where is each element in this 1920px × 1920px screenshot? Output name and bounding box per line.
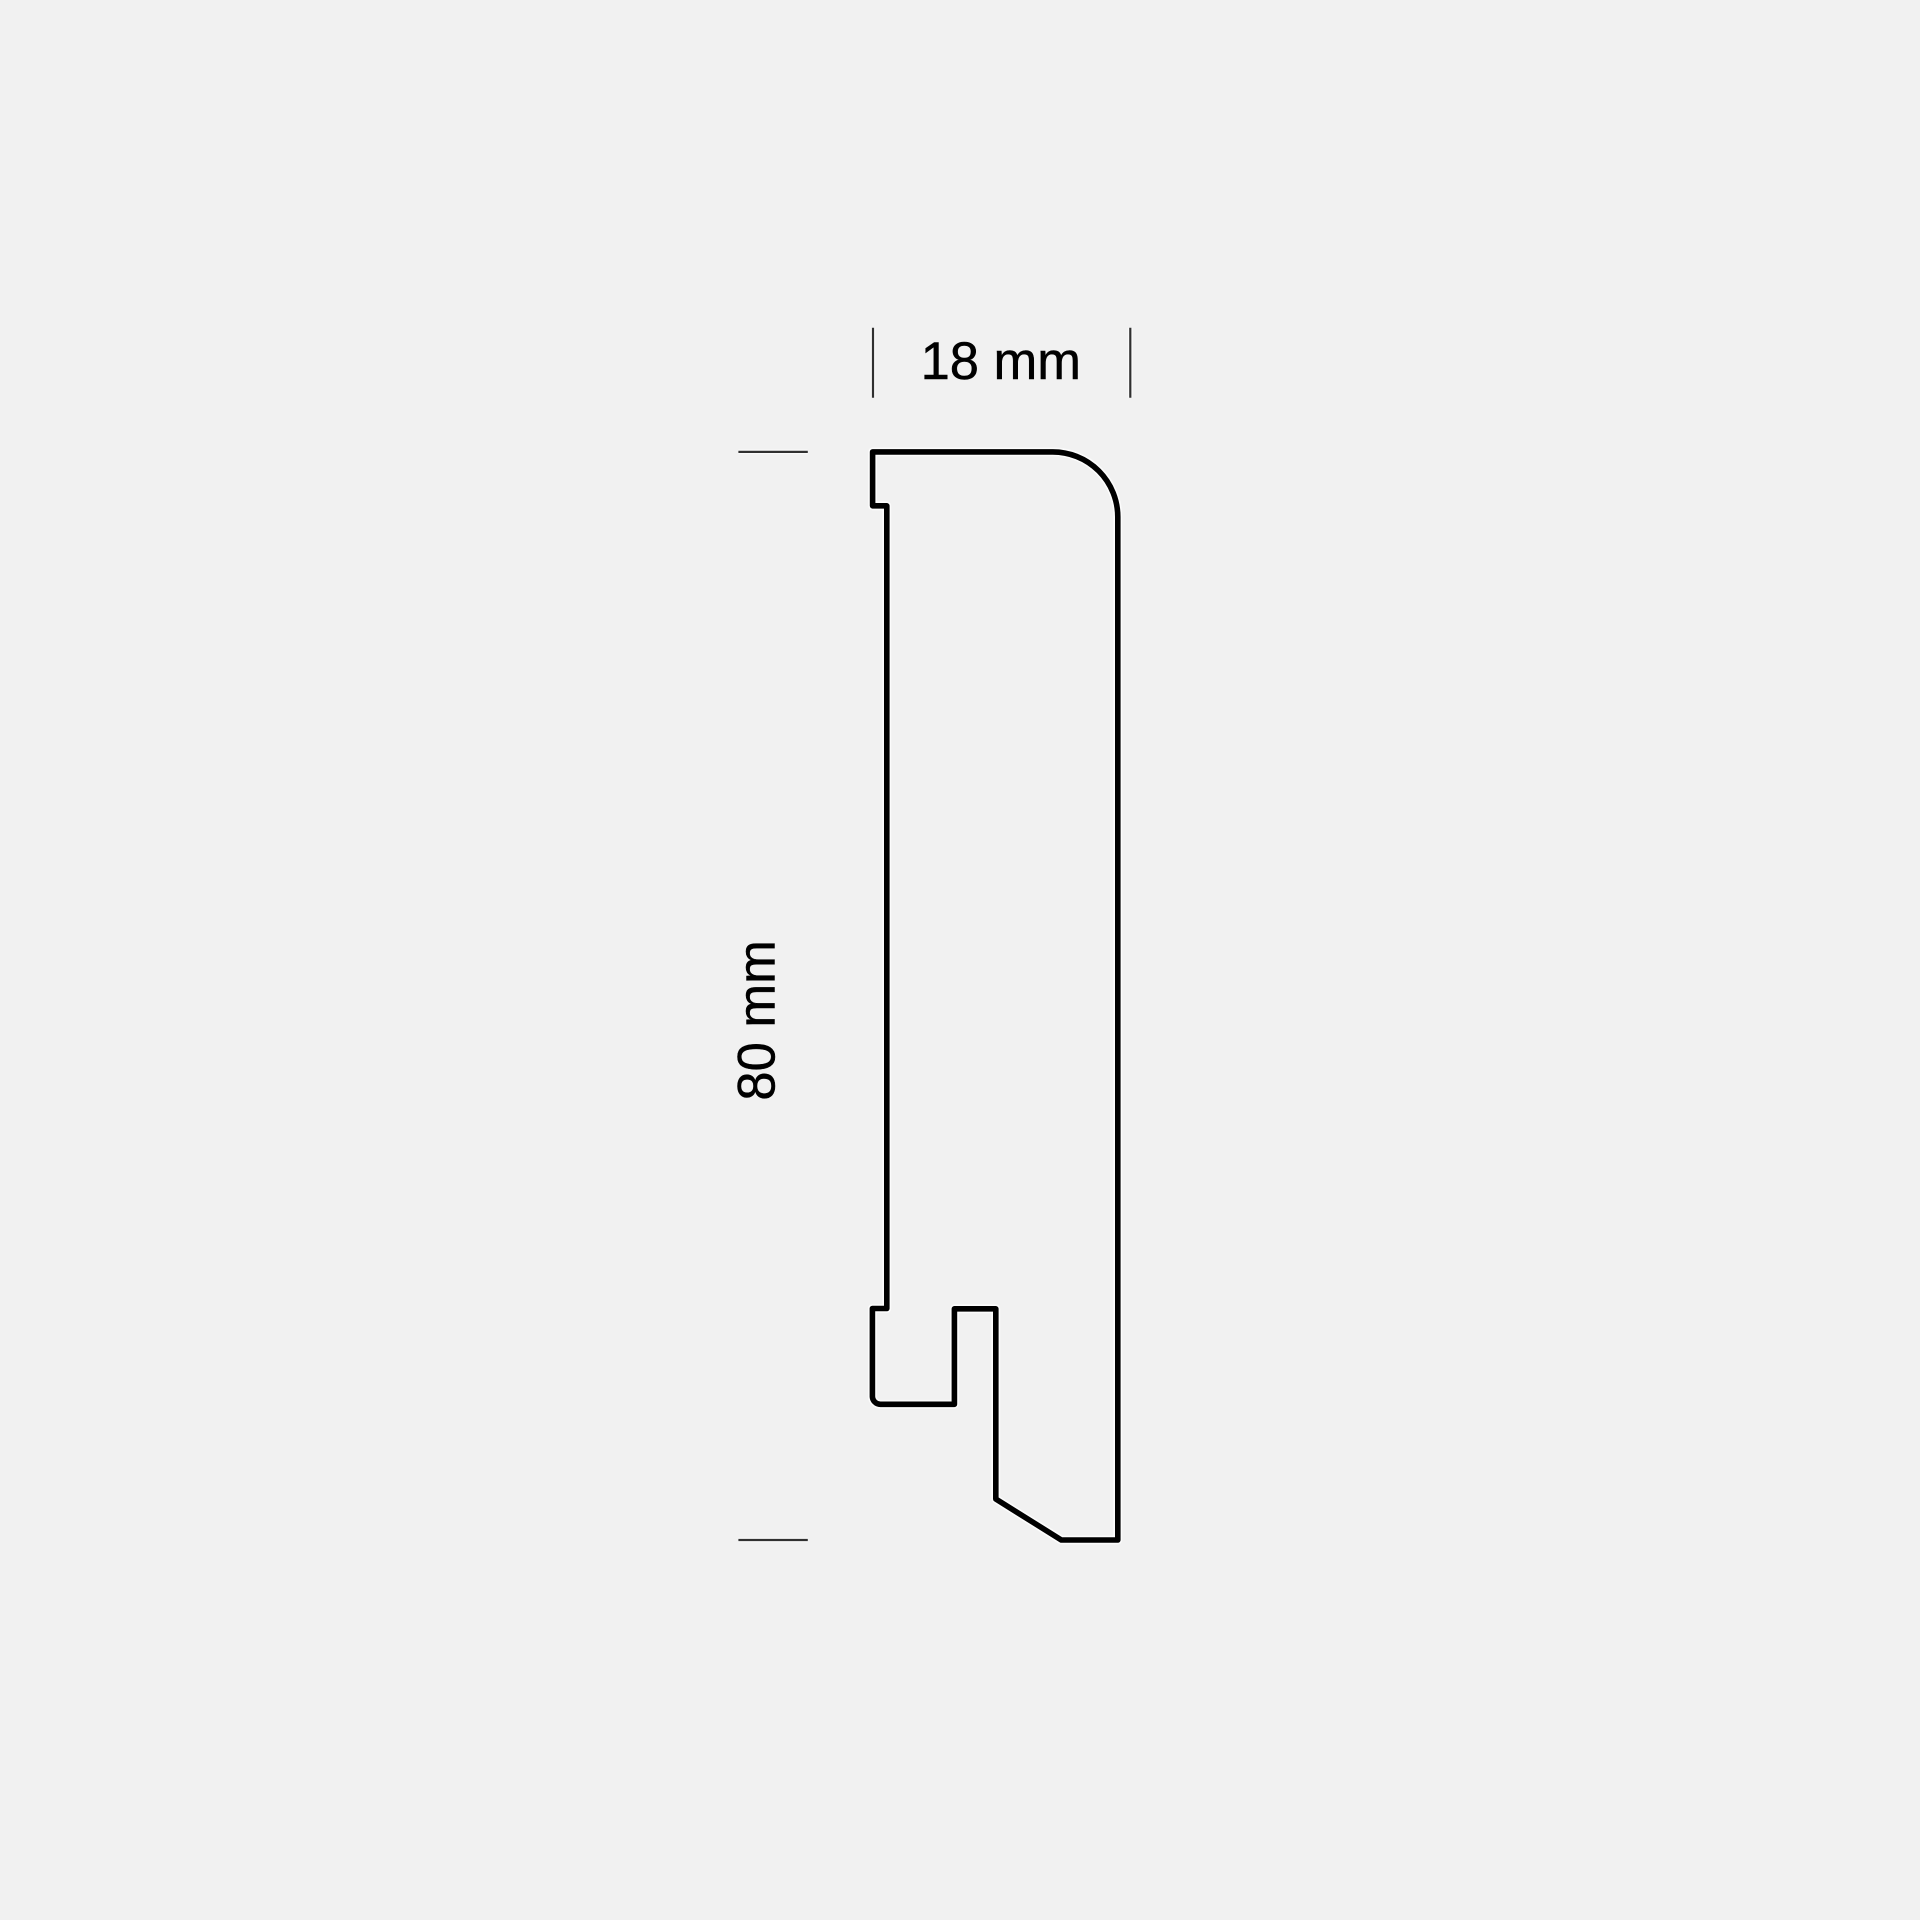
svg-text:18 mm: 18 mm xyxy=(921,332,1081,391)
svg-text:80 mm: 80 mm xyxy=(728,940,787,1100)
